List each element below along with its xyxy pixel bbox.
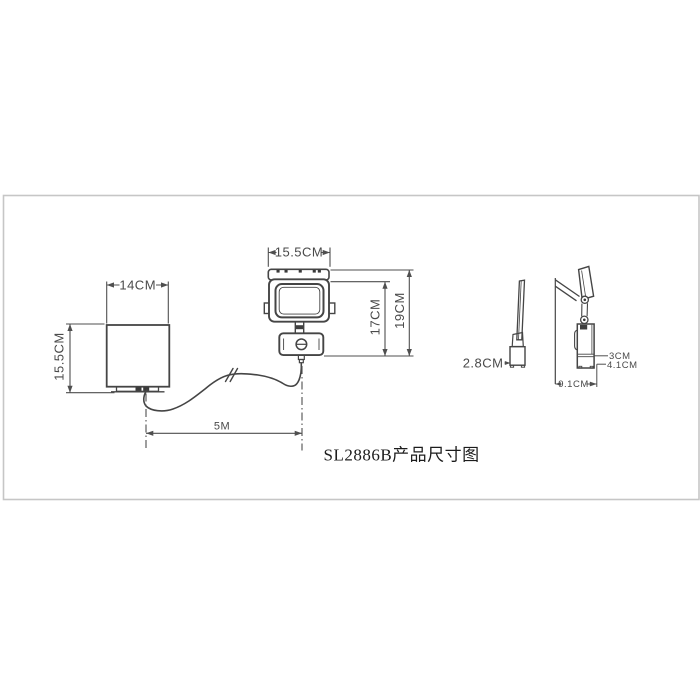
- dim-label-panel-width: 14CM: [119, 277, 156, 292]
- flood-light-front-view: [264, 269, 335, 362]
- dim-panel-depth: 2.8CM: [463, 355, 511, 370]
- stem-joint: [295, 322, 303, 334]
- dim-label-light-total-height: 19CM: [392, 292, 407, 329]
- dim-light-width: 15.5CM: [268, 245, 330, 267]
- dim-panel-width: 14CM: [107, 277, 169, 323]
- dim-light-body-height: 17CM: [331, 282, 391, 356]
- dim-label-lower-depth: 4.1CM: [607, 360, 637, 371]
- dim-label-light-width: 15.5CM: [275, 245, 324, 260]
- dim-lower-depth: 4.1CM: [597, 360, 638, 371]
- dim-label-panel-height: 15.5CM: [52, 332, 67, 381]
- dim-label-panel-depth: 2.8CM: [463, 355, 504, 370]
- base-plate-clip: [136, 387, 142, 391]
- dim-panel-height: 15.5CM: [52, 324, 115, 393]
- dim-label-total-depth: 9.1CM: [558, 379, 588, 390]
- lamp-head-side: [579, 266, 594, 299]
- solar-panel-front-view: [107, 325, 170, 392]
- solar-panel-side-view: 2.8CM: [463, 280, 525, 370]
- dim-label-light-body-height: 17CM: [368, 299, 383, 336]
- dimension-drawing: 14CM 15.5CM 15.5CM 17CM: [0, 0, 700, 700]
- drawing-title: SL2886B产品尺寸图: [324, 446, 480, 465]
- cable-gland: [298, 355, 304, 363]
- dim-label-cable-length: 5M: [214, 420, 230, 432]
- flood-light-side-view: 3CM 4.1CM 9.1CM: [555, 266, 637, 390]
- product-dimension-sheet: 14CM 15.5CM 15.5CM 17CM: [0, 0, 700, 700]
